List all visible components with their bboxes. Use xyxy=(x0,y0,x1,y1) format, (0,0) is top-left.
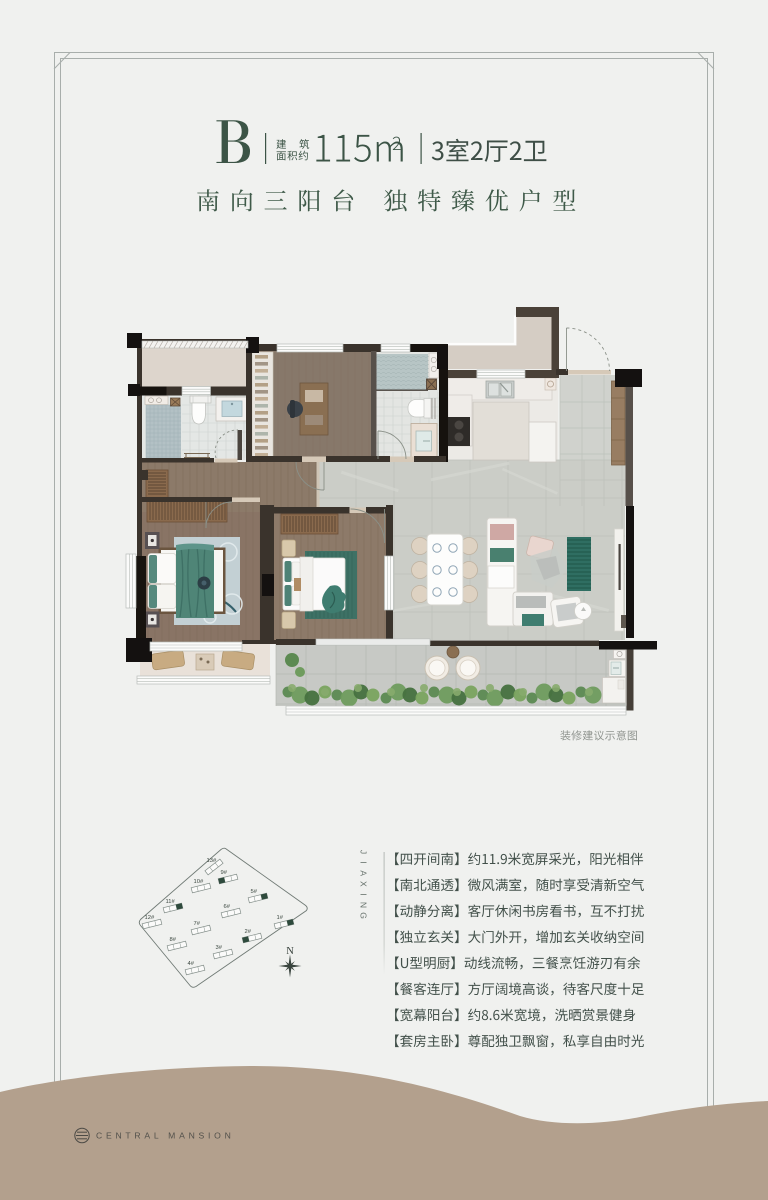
svg-text:5#: 5# xyxy=(251,889,258,895)
svg-text:N: N xyxy=(286,946,294,957)
svg-text:10#: 10# xyxy=(194,879,204,885)
svg-text:9#: 9# xyxy=(221,870,228,876)
svg-text:1#: 1# xyxy=(277,915,284,921)
svg-text:G: G xyxy=(359,912,369,919)
svg-text:X: X xyxy=(359,881,369,887)
svg-text:N: N xyxy=(359,902,369,908)
svg-text:CENTRAL MANSION: CENTRAL MANSION xyxy=(96,1131,235,1141)
svg-text:13#: 13# xyxy=(207,858,217,864)
svg-text:7#: 7# xyxy=(194,921,201,927)
svg-text:3#: 3# xyxy=(216,945,223,951)
svg-text:2#: 2# xyxy=(245,929,252,935)
svg-text:4#: 4# xyxy=(188,961,195,967)
svg-text:11#: 11# xyxy=(166,899,176,905)
svg-text:J: J xyxy=(359,850,369,854)
svg-text:I: I xyxy=(359,893,369,895)
svg-text:8#: 8# xyxy=(170,937,177,943)
svg-text:12#: 12# xyxy=(145,915,155,921)
svg-text:A: A xyxy=(359,870,369,876)
svg-text:6#: 6# xyxy=(224,904,231,910)
svg-text:I: I xyxy=(359,861,369,863)
